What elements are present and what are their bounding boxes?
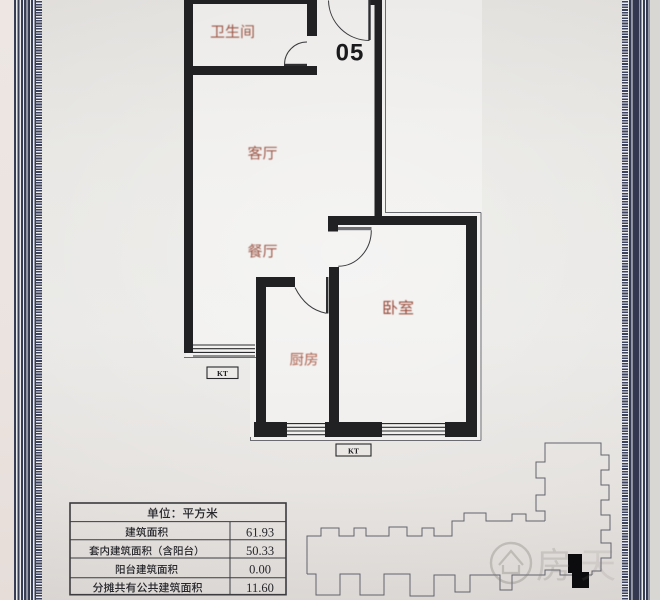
svg-text:0.00: 0.00 xyxy=(249,563,271,577)
svg-text:KT: KT xyxy=(217,369,228,378)
svg-text:11.60: 11.60 xyxy=(246,581,274,595)
svg-text:61.93: 61.93 xyxy=(246,525,274,539)
svg-text:50.33: 50.33 xyxy=(246,544,274,558)
svg-text:KT: KT xyxy=(348,447,359,456)
svg-text:05: 05 xyxy=(336,40,365,67)
